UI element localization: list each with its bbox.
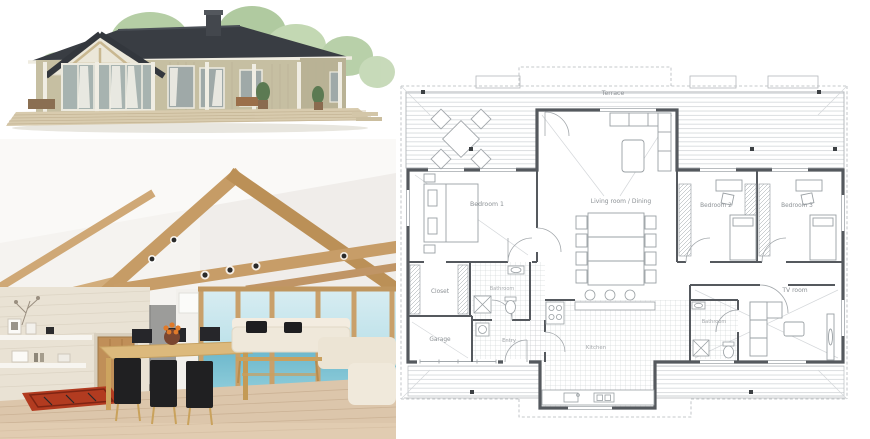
exterior-scene [0,0,396,137]
deck-steps [352,112,378,116]
interior-photo [0,139,396,439]
label-tv-room: TV room [781,287,807,294]
desk2 [716,180,742,191]
dining-chairs-front [114,358,213,408]
tv-room-furniture [750,302,834,360]
dining-chair [132,329,152,343]
label-bathroom2: Bathroom [702,319,727,325]
house-plan-collage: Terrace Bedroom 1 Living room / Dining B… [0,0,870,439]
glass-doors [62,64,154,110]
tv-sofa [750,302,767,356]
label-closet: Closet [431,289,450,295]
label-bathroom1: Bathroom [490,286,515,292]
chimney [206,12,221,36]
floor-plan: Terrace Bedroom 1 Living room / Dining B… [396,0,870,439]
exterior-photo [0,0,396,137]
stove [546,302,564,324]
bar-counter [575,302,655,310]
bedroom1-furniture [424,174,478,253]
dining-table-plan [588,213,644,285]
floor-plan-drawing: Terrace Bedroom 1 Living room / Dining B… [396,0,870,439]
label-garage: Garage [429,337,451,343]
label-kitchen: Kitchen [586,345,606,351]
label-terrace: Terrace [601,90,625,97]
bar-stool [585,290,595,300]
deck [6,108,382,133]
label-entry: Entry [502,338,516,344]
label-bedroom1: Bedroom 1 [470,201,504,208]
interior-scene [0,139,396,439]
sofa-chaise [348,363,396,405]
sofa-cushion [246,321,267,333]
label-bedroom2: Bedroom 2 [700,203,732,209]
label-living: Living room / Dining [591,198,652,205]
coffee-table-plan [622,140,644,172]
bedroom3-furniture [796,180,836,260]
desk3 [796,180,822,191]
potted-plant [256,82,270,102]
camera-ornament [46,327,54,334]
label-bedroom3: Bedroom 3 [781,203,813,209]
